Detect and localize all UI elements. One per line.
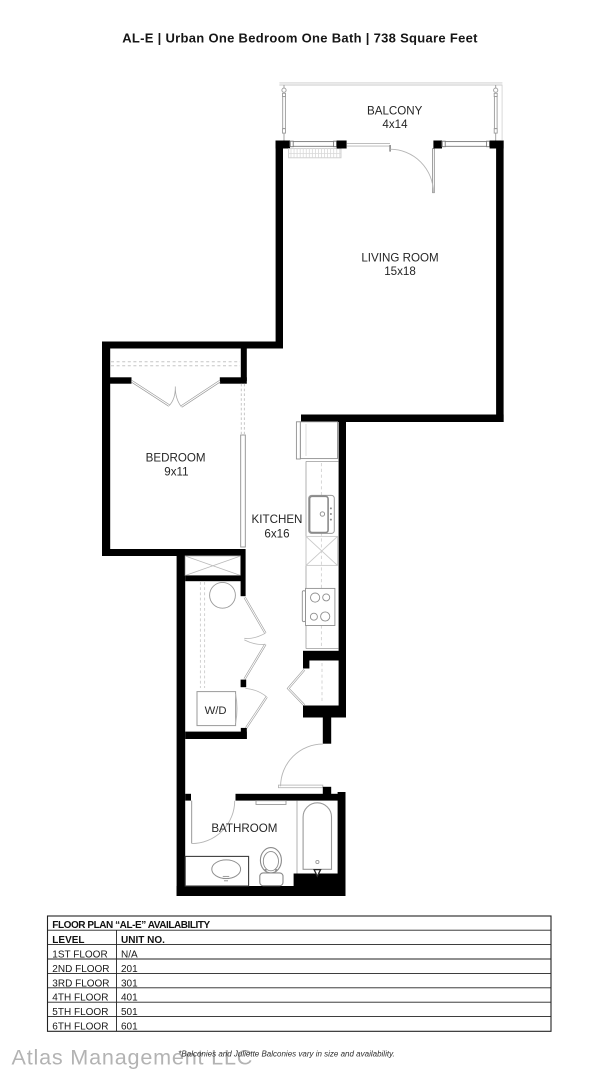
svg-text:UNIT NO.: UNIT NO. [121, 935, 165, 946]
svg-text:15x18: 15x18 [384, 265, 416, 278]
svg-text:9x11: 9x11 [164, 465, 188, 478]
svg-text:301: 301 [121, 978, 138, 989]
svg-text:*Balconies and Juliette Balcon: *Balconies and Juliette Balconies vary i… [178, 1049, 394, 1058]
svg-text:LEVEL: LEVEL [52, 935, 84, 946]
svg-text:KITCHEN: KITCHEN [252, 513, 303, 526]
svg-text:5TH FLOOR: 5TH FLOOR [52, 1007, 108, 1018]
svg-text:FLOOR PLAN “AL-E” AVAILABILITY: FLOOR PLAN “AL-E” AVAILABILITY [52, 920, 210, 931]
svg-text:501: 501 [121, 1007, 138, 1018]
svg-text:6TH FLOOR: 6TH FLOOR [52, 1022, 108, 1033]
svg-text:601: 601 [121, 1022, 138, 1033]
svg-text:BEDROOM: BEDROOM [146, 452, 206, 465]
svg-text:401: 401 [121, 993, 138, 1004]
svg-text:2ND FLOOR: 2ND FLOOR [52, 964, 109, 975]
svg-text:201: 201 [121, 964, 138, 975]
svg-text:W/D: W/D [205, 705, 227, 717]
svg-text:6x16: 6x16 [264, 527, 289, 540]
svg-text:BALCONY: BALCONY [367, 104, 423, 117]
svg-text:4x14: 4x14 [382, 118, 408, 131]
svg-text:3RD FLOOR: 3RD FLOOR [52, 978, 109, 989]
svg-text:BATHROOM: BATHROOM [211, 822, 277, 835]
svg-text:4TH FLOOR: 4TH FLOOR [52, 993, 108, 1004]
svg-text:1ST FLOOR: 1ST FLOOR [52, 950, 107, 961]
svg-text:AL-E | Urban One Bedroom One B: AL-E | Urban One Bedroom One Bath | 738 … [122, 30, 478, 45]
svg-text:LIVING ROOM: LIVING ROOM [361, 251, 438, 264]
svg-text:N/A: N/A [121, 950, 138, 961]
